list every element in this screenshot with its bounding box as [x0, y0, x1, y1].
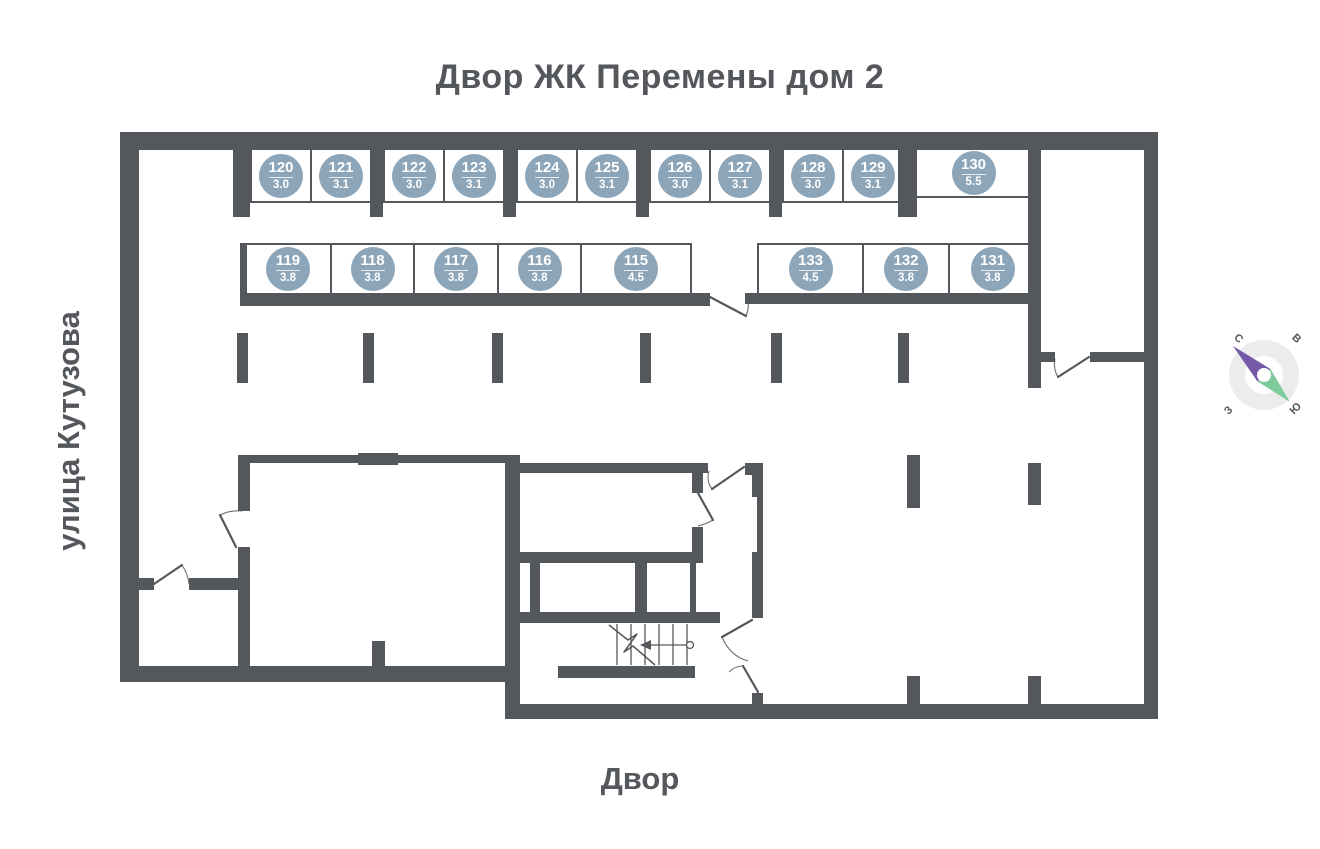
wall-segment	[370, 150, 383, 217]
compass-label-east: В	[1289, 332, 1303, 346]
unit-area: 3.0	[805, 180, 821, 192]
unit-area: 3.8	[365, 273, 381, 285]
wall-segment	[505, 455, 520, 705]
unit-badge: 1334.5	[789, 247, 833, 291]
plan-overlay: С В З Ю	[0, 0, 1320, 849]
door	[220, 511, 242, 547]
storage-unit-130[interactable]: 1305.5	[915, 148, 1032, 198]
unit-number: 118	[360, 253, 384, 268]
unit-badge: 1173.8	[434, 247, 478, 291]
unit-area: 3.0	[273, 180, 289, 192]
unit-area: 3.0	[539, 180, 555, 192]
storage-unit-133[interactable]: 1334.5	[757, 243, 864, 295]
wall-segment	[752, 693, 763, 705]
unit-number: 120	[268, 160, 293, 175]
badge-divider	[462, 177, 486, 178]
badge-divider	[962, 174, 986, 175]
storage-unit-128[interactable]: 1283.0	[782, 148, 844, 203]
wall-segment	[752, 552, 763, 618]
unit-number: 132	[893, 253, 918, 268]
unit-number: 126	[667, 160, 692, 175]
storage-unit-121[interactable]: 1213.1	[310, 148, 372, 203]
wall-segment	[520, 463, 708, 473]
storage-unit-124[interactable]: 1243.0	[516, 148, 578, 203]
unit-area: 3.8	[532, 273, 548, 285]
door	[729, 666, 758, 692]
storage-unit-116[interactable]: 1163.8	[497, 243, 582, 295]
unit-number: 121	[328, 160, 353, 175]
unit-number: 122	[401, 160, 426, 175]
storage-unit-120[interactable]: 1203.0	[250, 148, 312, 203]
storage-unit-131[interactable]: 1313.8	[948, 243, 1037, 295]
unit-area: 3.0	[672, 180, 688, 192]
unit-number: 115	[624, 253, 648, 268]
unit-badge: 1154.5	[614, 247, 658, 291]
wall-segment	[752, 475, 763, 497]
compass-label-north: С	[1231, 332, 1245, 346]
unit-area: 3.8	[898, 273, 914, 285]
wall-segment	[503, 150, 516, 217]
door	[154, 565, 189, 584]
badge-divider	[728, 177, 752, 178]
unit-badge: 1213.1	[319, 154, 363, 198]
compass-needle-north-icon	[1233, 346, 1271, 382]
floor-plan: 1203.01213.11223.01233.11243.01253.11263…	[0, 0, 1320, 849]
wall-segment	[558, 666, 695, 678]
badge-divider	[361, 270, 385, 271]
unit-area: 3.1	[333, 180, 349, 192]
wall-segment	[907, 676, 920, 706]
unit-number: 117	[444, 253, 468, 268]
wall-segment	[510, 612, 720, 623]
wall-segment	[510, 552, 703, 563]
wall-segment	[1144, 132, 1158, 718]
unit-number: 124	[534, 160, 559, 175]
badge-divider	[276, 270, 300, 271]
wall-segment	[1028, 463, 1041, 505]
wall-segment	[238, 463, 250, 511]
unit-badge: 1305.5	[952, 151, 996, 195]
unit-badge: 1313.8	[971, 247, 1015, 291]
compass-needle-south-icon	[1258, 369, 1291, 402]
unit-area: 3.8	[448, 273, 464, 285]
wall-segment	[233, 150, 250, 217]
badge-divider	[269, 177, 293, 178]
unit-number: 116	[527, 253, 551, 268]
unit-number: 131	[980, 253, 1005, 268]
storage-unit-125[interactable]: 1253.1	[576, 148, 638, 203]
wall-segment	[1028, 676, 1041, 714]
unit-area: 4.5	[803, 273, 819, 285]
wall-segment	[139, 578, 154, 590]
unit-badge: 1183.8	[351, 247, 395, 291]
unit-area: 5.5	[966, 177, 982, 189]
wall-segment	[635, 563, 647, 612]
wall-segment	[1090, 352, 1144, 362]
storage-unit-118[interactable]: 1183.8	[330, 243, 415, 295]
badge-divider	[595, 177, 619, 178]
unit-number: 123	[461, 160, 486, 175]
unit-number: 129	[860, 160, 885, 175]
storage-unit-132[interactable]: 1323.8	[862, 243, 950, 295]
wall-segment	[505, 704, 1158, 719]
wall-segment	[363, 333, 374, 383]
unit-area: 4.5	[628, 273, 644, 285]
wall-segment	[372, 641, 385, 668]
door	[710, 297, 748, 316]
wall-segment	[120, 666, 520, 682]
wall-segment	[492, 333, 503, 383]
unit-number: 119	[276, 253, 300, 268]
storage-unit-119[interactable]: 1193.8	[244, 243, 332, 295]
unit-area: 3.1	[466, 180, 482, 192]
unit-badge: 1163.8	[518, 247, 562, 291]
wall-segment	[238, 547, 250, 668]
wall-segment	[237, 333, 248, 383]
badge-divider	[535, 177, 559, 178]
badge-divider	[981, 270, 1005, 271]
wall-segment	[120, 132, 1158, 150]
unit-badge: 1253.1	[585, 154, 629, 198]
unit-number: 130	[961, 157, 986, 172]
compass-label-west: З	[1222, 404, 1235, 417]
unit-badge: 1223.0	[392, 154, 436, 198]
badge-divider	[861, 177, 885, 178]
unit-badge: 1323.8	[884, 247, 928, 291]
badge-divider	[444, 270, 468, 271]
wall-segment	[1041, 352, 1055, 362]
unit-number: 128	[800, 160, 825, 175]
wall-segment	[690, 563, 696, 612]
badge-divider	[668, 177, 692, 178]
badge-divider	[894, 270, 918, 271]
storage-unit-126[interactable]: 1263.0	[649, 148, 711, 203]
wall-segment	[240, 293, 710, 306]
badge-divider	[624, 270, 648, 271]
unit-number: 125	[594, 160, 619, 175]
staircase	[609, 624, 694, 665]
wall-segment	[745, 293, 1035, 304]
unit-area: 3.8	[985, 273, 1001, 285]
unit-badge: 1243.0	[525, 154, 569, 198]
unit-badge: 1283.0	[791, 154, 835, 198]
wall-segment	[769, 150, 782, 217]
wall-segment	[120, 132, 139, 682]
unit-badge: 1203.0	[259, 154, 303, 198]
unit-badge: 1293.1	[851, 154, 895, 198]
unit-number: 127	[727, 160, 752, 175]
badge-divider	[528, 270, 552, 271]
wall-segment	[898, 333, 909, 383]
door	[708, 467, 744, 489]
wall-segment	[636, 150, 649, 217]
wall-segment	[358, 453, 398, 465]
unit-badge: 1273.1	[718, 154, 762, 198]
compass-ring-icon	[1229, 340, 1299, 410]
unit-area: 3.0	[406, 180, 422, 192]
floor-plan-page: Двор ЖК Перемены дом 2 улица Кутузова Дв…	[0, 0, 1320, 849]
unit-badge: 1193.8	[266, 247, 310, 291]
unit-area: 3.8	[280, 273, 296, 285]
storage-unit-122[interactable]: 1223.0	[383, 148, 445, 203]
wall-segment	[771, 333, 782, 383]
wall-segment	[757, 497, 763, 552]
wall-segment	[907, 455, 920, 508]
wall-segment	[692, 473, 703, 493]
door	[1054, 357, 1089, 377]
badge-divider	[799, 270, 823, 271]
wall-segment	[745, 463, 763, 475]
wall-segment	[1028, 148, 1041, 388]
storage-unit-129[interactable]: 1293.1	[842, 148, 904, 203]
badge-divider	[329, 177, 353, 178]
wall-segment	[692, 527, 703, 552]
storage-unit-123[interactable]: 1233.1	[443, 148, 505, 203]
wall-segment	[530, 563, 540, 612]
wall-segment	[189, 578, 250, 590]
storage-unit-117[interactable]: 1173.8	[413, 243, 499, 295]
storage-unit-115[interactable]: 1154.5	[580, 243, 692, 295]
unit-area: 3.1	[732, 180, 748, 192]
unit-badge: 1233.1	[452, 154, 496, 198]
storage-unit-127[interactable]: 1273.1	[709, 148, 771, 203]
unit-number: 133	[798, 253, 823, 268]
unit-area: 3.1	[865, 180, 881, 192]
wall-segment	[898, 150, 917, 217]
compass-label-south: Ю	[1287, 400, 1304, 417]
unit-badge: 1263.0	[658, 154, 702, 198]
door	[698, 493, 713, 526]
unit-area: 3.1	[599, 180, 615, 192]
compass: С В З Ю	[1222, 332, 1304, 418]
badge-divider	[402, 177, 426, 178]
badge-divider	[801, 177, 825, 178]
door	[722, 620, 752, 661]
wall-segment	[640, 333, 651, 383]
